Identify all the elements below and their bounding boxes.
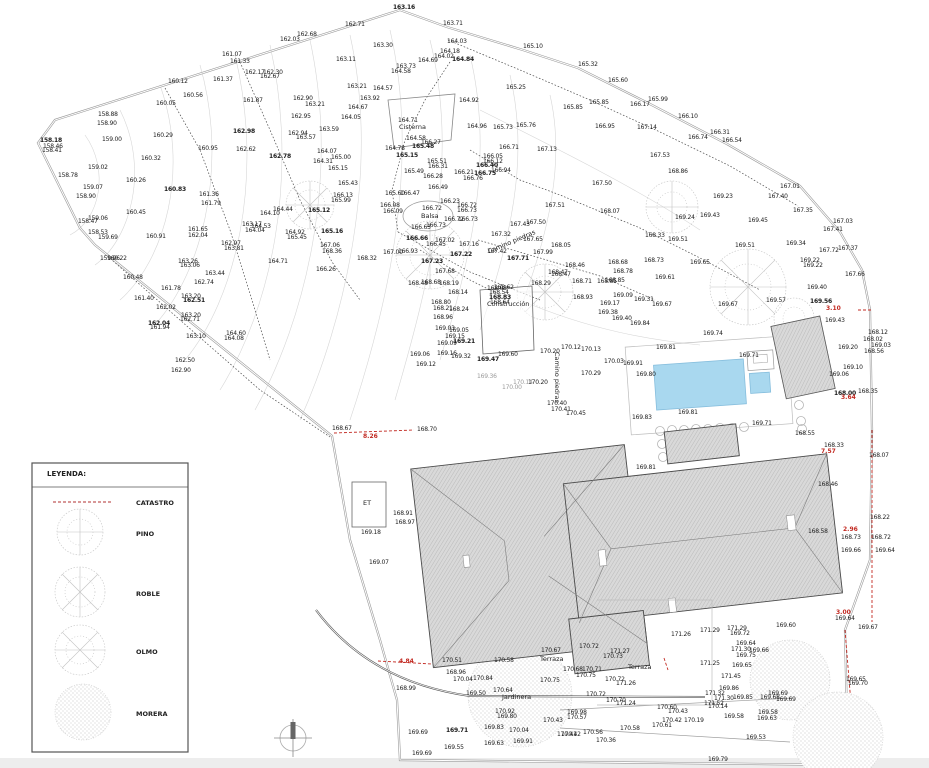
elevation-point-label: 164.84	[452, 57, 474, 63]
elevation-point-label: 164.57	[373, 86, 393, 92]
elevation-point-label: 168.72	[871, 535, 891, 541]
elevation-point-label: 169.58	[724, 714, 744, 720]
elevation-point-label: 168.22	[870, 515, 890, 521]
elevation-point-label: 159.00	[102, 137, 122, 143]
elevation-point-label: 170.61	[652, 723, 672, 729]
elevation-point-label: 158.47	[78, 219, 98, 225]
elevation-point-label: 170.72	[579, 644, 599, 650]
elevation-point-label: 168.70	[417, 427, 437, 433]
elevation-point-label: 170.84	[473, 676, 493, 682]
elevation-point-label: 162.04	[188, 233, 208, 239]
elevation-point-label: 163.81	[224, 246, 244, 252]
elevation-point-label: 167.41	[823, 227, 843, 233]
elevation-point-label: 169.60	[776, 623, 796, 629]
elevation-point-label: 169.06	[410, 352, 430, 358]
site-plan-canvas: LEYENDA: CATASTROPINOROBLEOLMOMORERA 163…	[0, 0, 929, 768]
elevation-point-label: 169.66	[841, 548, 861, 554]
elevation-point-label: 169.34	[786, 241, 806, 247]
elevation-point-label: 166.28	[423, 174, 443, 180]
elevation-point-label: 164.05	[341, 115, 361, 121]
elevation-point-label: 166.17	[630, 102, 650, 108]
elevation-point-label: 161.33	[230, 59, 250, 65]
elevation-point-label: 168.86	[668, 169, 688, 175]
elevation-point-label: 164.10	[260, 211, 280, 217]
legend-title: LEYENDA:	[47, 470, 86, 478]
elevation-point-label: 161.36	[199, 192, 219, 198]
elevation-point-label: 165.60	[608, 78, 628, 84]
elevation-point-label: 167.23	[421, 259, 443, 265]
elevation-point-label: 169.53	[746, 735, 766, 741]
elevation-point-label: 160.32	[141, 156, 161, 162]
elevation-point-label: 169.84	[630, 321, 650, 327]
elevation-point-label: 168.67	[332, 426, 352, 432]
elevation-point-label: 170.75	[576, 673, 596, 679]
elevation-point-label: 167.43	[510, 222, 530, 228]
catastro-dimension-label: 3.10	[826, 306, 841, 312]
elevation-point-label: 162.62	[236, 147, 256, 153]
elevation-point-label: 160.95	[198, 146, 218, 152]
elevation-point-label: 169.91	[513, 739, 533, 745]
elevation-point-label: 163.10	[186, 334, 206, 340]
elevation-point-label: 167.66	[845, 272, 865, 278]
elevation-point-label: 164.08	[224, 336, 244, 342]
elevation-point-label: 169.63	[757, 716, 777, 722]
elevation-point-label: 166.54	[722, 138, 742, 144]
elevation-point-label: 169.69	[412, 751, 432, 757]
elevation-point-label: 170.19	[684, 718, 704, 724]
elevation-point-label: 170.75	[540, 678, 560, 684]
elevation-point-label: 168.19	[439, 281, 459, 287]
elevation-point-label: 171.29	[700, 628, 720, 634]
elevation-point-label: 163.57	[296, 135, 316, 141]
elevation-point-label: 166.71	[499, 145, 519, 151]
elevation-point-label: 166.10	[678, 114, 698, 120]
elevation-point-label: 168.14	[448, 290, 468, 296]
elevation-point-label: 164.03	[447, 39, 467, 45]
elevation-point-label: 169.60	[498, 352, 518, 358]
feature-label: Terraza	[628, 664, 651, 671]
feature-label: Terraza	[540, 656, 563, 663]
elevation-point-label: 171.45	[721, 674, 741, 680]
elevation-point-label: 162.02	[156, 305, 176, 311]
elevation-point-label: 168.46	[818, 482, 838, 488]
elevation-point-label: 166.66	[406, 236, 428, 242]
compass-north-needle	[291, 722, 296, 739]
elevation-point-label: 168.71	[572, 279, 592, 285]
elevation-point-label: 164.71	[268, 259, 288, 265]
elevation-point-label: 166.21	[454, 170, 474, 176]
elevation-point-label: 169.67	[718, 302, 738, 308]
elevation-point-label: 158.90	[76, 194, 96, 200]
elevation-point-label: 168.73	[841, 535, 861, 541]
elevation-point-label: 163.92	[360, 96, 380, 102]
elevation-point-label: 162.03	[280, 37, 300, 43]
elevation-point-label: 170.00	[502, 385, 522, 391]
elevation-point-label: 169.21	[453, 339, 475, 345]
elevation-point-label: 170.58	[620, 726, 640, 732]
elevation-point-label: 170.56	[583, 730, 603, 736]
elevation-point-label: 166.49	[428, 185, 448, 191]
feature-label: ET	[363, 500, 371, 507]
tree	[646, 181, 698, 233]
elevation-point-label: 166.73	[457, 208, 477, 214]
elevation-point-label: 169.40	[807, 285, 827, 291]
elevation-point-label: 167.68	[435, 269, 455, 275]
feature-label: Jardinera	[502, 694, 531, 701]
elevation-point-label: 165.15	[396, 153, 418, 159]
elevation-point-label: 168.68	[608, 260, 628, 266]
elevation-point-label: 167.40	[768, 194, 788, 200]
elevation-point-label: 168.96	[433, 315, 453, 321]
elevation-point-label: 171.25	[700, 661, 720, 667]
elevation-point-label: 169.17	[600, 301, 620, 307]
elevation-point-label: 160.12	[168, 79, 188, 85]
elevation-point-label: 165.85	[589, 100, 609, 106]
elevation-point-label: 163.30	[373, 43, 393, 49]
elevation-point-label: 160.56	[183, 93, 203, 99]
elevation-point-label: 170.04	[509, 728, 529, 734]
elevation-point-label: 165.43	[338, 181, 358, 187]
elevation-point-label: 165.99	[331, 198, 351, 204]
feature-label: Construcción	[487, 301, 529, 308]
elevation-point-label: 168.99	[396, 686, 416, 692]
elevation-point-label: 166.31	[710, 130, 730, 136]
elevation-point-label: 168.05	[551, 243, 571, 249]
elevation-point-label: 171.26	[616, 681, 636, 687]
catastro-dimension-label: 4.84	[399, 659, 414, 665]
elevation-point-label: 165.12	[308, 208, 330, 214]
elevation-point-label: 169.71	[446, 728, 468, 734]
elevation-point-label: 170.14	[708, 704, 728, 710]
legend-item-label: OLMO	[136, 648, 158, 656]
catastro-dimension-label: 3.00	[836, 610, 851, 616]
elevation-point-label: 169.23	[713, 194, 733, 200]
elevation-point-label: 159.69	[98, 235, 118, 241]
elevation-point-label: 168.93	[573, 295, 593, 301]
elevation-point-label: 168.58	[808, 529, 828, 535]
elevation-point-label: 170.45	[566, 411, 586, 417]
elevation-point-label: 169.18	[361, 530, 381, 536]
elevation-point-label: 170.12	[561, 345, 581, 351]
elevation-point-label: 166.74	[688, 135, 708, 141]
elevation-point-label: 160.91	[146, 234, 166, 240]
elevation-point-label: 169.65	[690, 260, 710, 266]
catastro-dimension-label: 7.57	[821, 449, 836, 455]
elevation-point-label: 164.04	[245, 228, 265, 234]
elevation-point-label: 169.51	[735, 243, 755, 249]
elevation-point-label: 168.91	[393, 511, 413, 517]
elevation-point-label: 167.72	[819, 248, 839, 254]
elevation-point-label: 161.94	[150, 325, 170, 331]
elevation-point-label: 163.16	[393, 5, 415, 11]
elevation-point-label: 160.45	[126, 210, 146, 216]
elevation-point-label: 170.29	[581, 371, 601, 377]
legend-item-label: CATASTRO	[136, 499, 174, 507]
elevation-point-label: 167.71	[507, 256, 529, 262]
elevation-point-label: 165.48	[412, 144, 434, 150]
elevation-point-label: 169.12	[416, 362, 436, 368]
elevation-point-label: 161.37	[213, 77, 233, 83]
elevation-point-label: 169.85	[733, 695, 753, 701]
elevation-point-label: 169.81	[636, 465, 656, 471]
elevation-point-label: 165.45	[287, 235, 307, 241]
elevation-point-label: 170.13	[581, 347, 601, 353]
elevation-point-label: 165.16	[321, 229, 343, 235]
elevation-point-label: 170.72	[586, 692, 606, 698]
elevation-point-label: 169.69	[776, 697, 796, 703]
elevation-point-label: 169.69	[408, 730, 428, 736]
elevation-point-label: 166.93	[398, 249, 418, 255]
elevation-point-label: 165.25	[506, 85, 526, 91]
elevation-point-label: 166.09	[383, 209, 403, 215]
feature-label: Balsa	[421, 213, 439, 220]
elevation-point-label: 160.22	[107, 256, 127, 262]
elevation-point-label: 162.98	[233, 129, 255, 135]
elevation-point-label: 165.00	[331, 155, 351, 161]
elevation-point-label: 158.90	[97, 121, 117, 127]
elevation-point-label: 170.58	[494, 658, 514, 664]
elevation-point-label: 165.10	[523, 44, 543, 50]
elevation-point-label: 160.26	[126, 178, 146, 184]
elevation-point-label: 168.56	[864, 349, 884, 355]
elevation-point-label: 168.85	[605, 278, 625, 284]
elevation-point-label: 166.73	[426, 223, 446, 229]
elevation-point-label: 158.78	[58, 173, 78, 179]
elevation-point-label: 168.73	[644, 258, 664, 264]
elevation-point-label: 163.11	[336, 57, 356, 63]
elevation-point-label: 165.85	[563, 105, 583, 111]
elevation-point-label: 160.48	[123, 275, 143, 281]
elevation-point-label: 162.90	[171, 368, 191, 374]
compass-icon	[274, 719, 312, 757]
elevation-point-label: 169.74	[703, 331, 723, 337]
elevation-point-label: 170.43	[543, 718, 563, 724]
elevation-point-label: 169.07	[369, 560, 389, 566]
swimming-pool	[654, 359, 747, 410]
elevation-point-label: 162.51	[183, 298, 205, 304]
elevation-point-label: 161.40	[134, 296, 154, 302]
catastro-dimension-label: 8.26	[363, 434, 378, 440]
catastro-dimension-label: 2.96	[843, 527, 858, 533]
garage-building	[771, 316, 835, 399]
elevation-point-label: 160.29	[153, 133, 173, 139]
elevation-point-label: 168.33	[645, 233, 665, 239]
elevation-point-label: 169.43	[825, 318, 845, 324]
elevation-point-label: 165.49	[404, 169, 424, 175]
elevation-point-label: 158.88	[98, 112, 118, 118]
elevation-point-label: 164.58	[391, 69, 411, 75]
elevation-point-label: 170.04	[453, 677, 473, 683]
elevation-point-label: 167.37	[838, 246, 858, 252]
elevation-point-label: 163.06	[180, 263, 200, 269]
elevation-point-label: 164.96	[467, 124, 487, 130]
elevation-point-label: 169.83	[484, 725, 504, 731]
elevation-point-label: 161.78	[161, 286, 181, 292]
elevation-point-label: 169.91	[623, 361, 643, 367]
elevation-point-label: 170.73	[603, 654, 623, 660]
elevation-point-label: 169.83	[632, 415, 652, 421]
elevation-point-label: 169.06	[829, 372, 849, 378]
elevation-point-label: 163.71	[443, 21, 463, 27]
elevation-point-label: 158.41	[42, 148, 62, 154]
elevation-point-label: 164.92	[459, 98, 479, 104]
catastro-dimension-label: 3.64	[841, 395, 856, 401]
elevation-point-label: 163.21	[347, 84, 367, 90]
elevation-point-label: 164.69	[418, 58, 438, 64]
elevation-point-label: 168.07	[869, 453, 889, 459]
elevation-point-label: 160.83	[164, 187, 186, 193]
elevation-point-label: 169.47	[477, 357, 499, 363]
elevation-point-label: 163.59	[319, 127, 339, 133]
elevation-point-label: 169.22	[803, 263, 823, 269]
elevation-point-label: 168.32	[357, 256, 377, 262]
elevation-point-label: 169.57	[766, 298, 786, 304]
legend-morera-symbol	[55, 684, 111, 740]
elevation-point-label: 168.68	[421, 280, 441, 286]
elevation-point-label: 161.79	[201, 201, 221, 207]
elevation-point-label: 167.14	[637, 125, 657, 131]
elevation-point-label: 170.42	[561, 732, 581, 738]
elevation-point-label: 169.24	[675, 215, 695, 221]
elevation-point-label: 161.87	[243, 98, 263, 104]
elevation-point-label: 159.07	[83, 185, 103, 191]
elevation-point-label: 160.05	[156, 101, 176, 107]
elevation-point-label: 166.95	[595, 124, 615, 130]
elevation-point-label: 168.97	[395, 520, 415, 526]
elevation-point-label: 169.20	[838, 345, 858, 351]
elevation-point-label: 169.81	[656, 345, 676, 351]
elevation-point-label: 162.50	[175, 358, 195, 364]
elevation-point-label: 162.71	[345, 22, 365, 28]
legend-item-label: MORERA	[136, 710, 167, 718]
elevation-point-label: 171.26	[671, 632, 691, 638]
elevation-point-label: 169.71	[739, 353, 759, 359]
elevation-point-label: 169.51	[668, 237, 688, 243]
elevation-point-label: 169.64	[875, 548, 895, 554]
elevation-point-label: 167.03	[833, 219, 853, 225]
elevation-point-label: 163.44	[205, 271, 225, 277]
elevation-point-label: 168.78	[613, 269, 633, 275]
elevation-point-label: 166.26	[316, 267, 336, 273]
elevation-point-label: 162.67	[260, 74, 280, 80]
elevation-point-label: 165.73	[493, 125, 513, 131]
legend-item-label: PINO	[136, 530, 154, 538]
elevation-point-label: 168.36	[322, 249, 342, 255]
elevation-point-label: 169.63	[484, 741, 504, 747]
elevation-point-label: 167.50	[592, 181, 612, 187]
elevation-point-label: 169.09	[613, 293, 633, 299]
elevation-point-label: 169.80	[497, 714, 517, 720]
elevation-point-label: 162.95	[291, 114, 311, 120]
elevation-point-label: 169.65	[732, 663, 752, 669]
elevation-point-label: 163.21	[305, 102, 325, 108]
elevation-point-label: 168.35	[858, 389, 878, 395]
elevation-point-label: 166.45	[426, 242, 446, 248]
elevation-point-label: 170.03	[604, 359, 624, 365]
elevation-point-label: 169.43	[700, 213, 720, 219]
elevation-point-label: 168.24	[449, 307, 469, 313]
elevation-point-label: 167.53	[650, 153, 670, 159]
elevation-point-label: 170.51	[442, 658, 462, 664]
elevation-point-label: 167.99	[533, 250, 553, 256]
elevation-point-label: 169.67	[858, 625, 878, 631]
elevation-point-label: 162.78	[269, 154, 291, 160]
elevation-point-label: 166.31	[428, 164, 448, 170]
elevation-point-label: 166.73	[458, 217, 478, 223]
elevation-point-label: 169.36	[477, 374, 497, 380]
elevation-point-label: 170.67	[541, 648, 561, 654]
elevation-point-label: 168.55	[795, 431, 815, 437]
elevation-point-label: 169.80	[636, 372, 656, 378]
elevation-point-label: 169.55	[444, 745, 464, 751]
elevation-point-label: 167.32	[491, 232, 511, 238]
elevation-point-label: 169.70	[848, 681, 868, 687]
elevation-point-label: 167.01	[780, 184, 800, 190]
feature-label: Cisterna	[399, 124, 426, 131]
elevation-point-label: 165.15	[328, 166, 348, 172]
elevation-point-label: 165.99	[648, 97, 668, 103]
elevation-point-label: 162.74	[194, 280, 214, 286]
elevation-point-label: 169.67	[652, 302, 672, 308]
elevation-point-label: 169.81	[678, 410, 698, 416]
feature-label: Camino piedras	[554, 352, 561, 403]
elevation-point-label: 169.50	[466, 691, 486, 697]
elevation-point-label: 165.32	[578, 62, 598, 68]
small-pool	[749, 372, 770, 393]
elevation-point-label: 159.02	[88, 165, 108, 171]
elevation-point-label: 168.47	[551, 272, 571, 278]
elevation-point-label: 170.36	[596, 738, 616, 744]
elevation-point-label: 165.76	[516, 123, 536, 129]
elevation-point-label: 169.31	[634, 297, 654, 303]
tree	[286, 181, 334, 229]
bottom-band	[0, 758, 929, 768]
elevation-point-label: 168.29	[531, 281, 551, 287]
elevation-point-label: 170.57	[567, 715, 587, 721]
elevation-point-label: 169.61	[655, 275, 675, 281]
elevation-point-label: 169.72	[730, 631, 750, 637]
elevation-point-label: 169.75	[736, 653, 756, 659]
elevation-point-label: 166.76	[463, 176, 483, 182]
legend-item-label: ROBLE	[136, 590, 160, 598]
elevation-point-label: 169.79	[708, 757, 728, 763]
elevation-point-label: 171.24	[616, 701, 636, 707]
elevation-point-label: 169.32	[451, 354, 471, 360]
elevation-point-label: 168.07	[600, 209, 620, 215]
elevation-point-label: 167.51	[545, 203, 565, 209]
elevation-point-label: 164.67	[348, 105, 368, 111]
elevation-point-label: 162.71	[180, 317, 200, 323]
elevation-point-label: 167.35	[793, 208, 813, 214]
elevation-point-label: 167.22	[450, 252, 472, 258]
elevation-point-label: 169.40	[612, 316, 632, 322]
elevation-point-label: 170.43	[668, 709, 688, 715]
elevation-point-label: 169.71	[752, 421, 772, 427]
elevation-point-label: 167.16	[459, 242, 479, 248]
elevation-point-label: 167.13	[537, 147, 557, 153]
elevation-point-label: 169.64	[835, 616, 855, 622]
elevation-point-label: 166.47	[400, 191, 420, 197]
elevation-point-label: 169.45	[748, 218, 768, 224]
